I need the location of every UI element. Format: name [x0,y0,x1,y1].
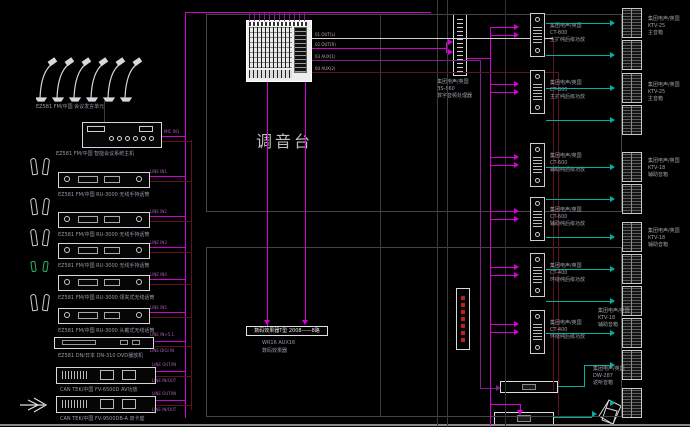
speaker-label-line: 集团电声/英国 [593,366,625,373]
speaker-label-line: 集团电声/英国 [598,308,630,315]
lavalier-mic-icon [30,261,36,273]
amp-label-line: 环绕纯后级功放 [550,334,585,341]
wire [546,199,610,200]
wire [312,72,558,73]
source-label: EZ581 FM/中国 RU-3000 无线手持话筒 [58,232,149,238]
line-label: LINE OUT/IN [152,392,176,396]
wire [490,92,514,93]
speaker-label-line: 集团电声/英国 [648,158,680,165]
wire [546,23,610,24]
wire [490,332,514,333]
receiver-knob [64,216,70,222]
wire [279,13,280,21]
wire [312,60,480,61]
receiver-knob [64,312,70,318]
wire [490,219,514,220]
line-label: LINE IN2 [150,210,167,214]
frame-bottom-edge [0,424,690,426]
wire [546,120,610,121]
wire [104,100,105,122]
speaker-label-line: KTV-18 [648,235,665,242]
receiver-display [78,279,98,286]
wire [546,269,610,270]
amp-vent [533,27,542,43]
speaker-icon [622,388,642,418]
receiver-display [104,216,120,223]
mixer-output-label: 03 AUX(1) [315,55,335,59]
wire-arrow-icon [514,321,519,327]
amp-label-line: CT-600 [550,214,567,221]
host-knob [117,136,122,141]
wire-arrow-icon [514,272,519,278]
panel-outline [206,14,622,212]
host-display [87,126,105,132]
amp-knob [535,105,540,110]
wire [150,216,185,217]
amp-knob [535,17,540,22]
handheld-mic-icon [30,294,38,312]
wire [259,13,260,21]
wire [490,157,514,158]
wire-arrow-icon [514,32,519,38]
amp-knob [535,288,540,293]
wire [546,55,610,56]
wire [267,82,268,326]
source-label: CAN TEK/中国 FV-6500D AV功放 [60,387,138,393]
conference-host-label: EZ581 FM/中国 智能会议系统主机 [56,151,134,157]
wire [490,324,514,325]
speaker-label-line: KTV-18 [598,315,615,322]
wire [380,14,381,417]
dvd-button [120,340,128,345]
wire [505,0,506,427]
wire [304,13,305,21]
wire [150,284,191,285]
amp-knob [535,147,540,152]
wire [150,279,185,280]
speaker-icon [622,8,642,38]
wire-arrow-icon [610,20,615,26]
speaker-label-line: DW-287 [593,373,613,380]
amp-label-line: 集团电声/英国 [550,153,582,160]
receiver-knob [64,247,70,253]
line-label: LINE DIGI IN [150,349,174,353]
host-knob [125,136,130,141]
line-label: LINE IN/OUT [152,408,176,412]
wire [299,13,300,21]
wire [437,0,438,427]
wire [546,88,610,89]
wire-arrow-icon [514,89,519,95]
wire [156,400,185,401]
host-knob [149,136,154,141]
wire [584,365,585,387]
wire-arrow-icon [514,208,519,214]
speaker-icon [622,105,642,135]
speaker-icon [622,222,642,252]
wire-arrow-icon [610,117,615,123]
amp-knob [535,178,540,183]
receiver-knob [136,312,142,318]
amp-vent [533,267,542,283]
amp-label-line: CT-400 [550,270,567,277]
wire [558,72,559,417]
receiver-knob [136,216,142,222]
wire [490,35,514,36]
speaker-icon [622,184,642,214]
amp-vent [533,324,542,340]
receiver-knob [64,176,70,182]
receiver-knob [136,176,142,182]
amp-knob [535,201,540,206]
speaker-icon [622,318,642,348]
wire-arrow-icon [514,154,519,160]
wire [191,140,192,410]
wire [554,417,592,418]
wire [490,404,520,405]
gooseneck-mic-array-icon [36,52,142,102]
wire-arrow-icon [514,162,519,168]
line-label: LINE IN4 [150,273,167,277]
wire [546,301,610,302]
receiver-display [78,216,98,223]
speaker-label-line: KTV-25 [648,23,665,30]
line-label: LINE IN/OUT [152,379,176,383]
amp-label-line: 集团电声/英国 [550,80,582,87]
wire-arrow-icon [514,24,519,30]
line-label: LINE IN1 [150,170,167,174]
line-label: LINE OUT/IN [152,363,176,367]
amp-knob [535,345,540,350]
wire [156,405,191,406]
wire-arrow-icon [514,329,519,335]
wire [150,312,185,313]
source-label: EZ581 FM/中国 RU-3000 无线手持话筒 [58,192,149,198]
wire [490,275,514,276]
speaker-label-line: 主音箱 [648,30,663,37]
wire [480,60,481,389]
amp-label-line: CT-800 [550,30,567,37]
wire [546,167,610,168]
wire-arrow-icon [610,52,615,58]
wire [490,28,491,427]
receiver-display [104,176,120,183]
amp-knob [535,257,540,262]
amp-label-line: 集团电声/英国 [550,207,582,214]
receiver-display [78,176,98,183]
amp-label-line: 集团电声/英国 [550,320,582,327]
speaker-icon [622,254,642,284]
handheld-mic-icon [42,198,50,216]
wire [162,141,191,142]
wire [447,0,448,427]
handheld-mic-icon [30,158,38,176]
wire [156,376,191,377]
receiver-knob [64,279,70,285]
wire-arrow-icon [610,400,615,406]
receiver-display [104,312,120,319]
deck-vu [62,400,88,408]
conference-mics-label: EZ581 FM/中国 会议发言单元 [36,104,104,110]
amp-knob [535,74,540,79]
deck-window [100,370,114,380]
receiver-display [78,312,98,319]
dvd-button [132,340,140,345]
speaker-label-line: 辅助音箱 [648,172,668,179]
wire-arrow-icon [264,320,270,325]
deck-window [122,399,136,409]
wire-arrow-icon [610,85,615,91]
speaker-icon [622,350,642,380]
wire [150,181,191,182]
wire [150,317,191,318]
handheld-mic-icon [30,229,38,247]
wire [546,333,610,334]
deck-window [122,370,136,380]
mixer-output-label: 04 AUX(2) [315,67,335,71]
wire-arrow-icon [610,234,615,240]
wire [156,371,185,372]
source-label: EZ581 FM/中国 RU-3000 头戴式无线话筒 [58,328,154,334]
wire-arrow-icon [302,320,308,325]
wire-arrow-icon [514,216,519,222]
wire [312,38,553,39]
deck-window [100,399,114,409]
amp-vent [533,84,542,100]
flow-arrow-icon [20,396,50,414]
speaker-label-line: 辅助音箱 [648,242,668,249]
receiver-knob [136,279,142,285]
wire-arrow-icon [517,410,523,415]
wire [558,386,584,387]
wire [150,176,185,177]
speaker-label-line: 返听音箱 [593,380,613,387]
wire [155,346,191,347]
amp-vent [533,157,542,173]
wire-arrow-icon [514,264,519,270]
wire [294,13,295,21]
wire [289,13,290,21]
source-label: CAN TEK/中国 FV-9500DB-A 双卡座 [60,416,145,422]
speaker-label-line: 辅助音箱 [598,322,618,329]
wire-arrow-icon [448,39,453,45]
speaker-icon [622,40,642,70]
wire-arrow-icon [610,298,615,304]
wire [305,82,306,321]
wire [467,58,490,59]
wire [490,267,514,268]
wire [446,42,447,53]
receiver-display [104,247,120,254]
wire-arrow-icon [610,266,615,272]
receiver-display [78,247,98,254]
mixer-output-label: 02 OUT(R) [315,43,336,47]
wire [490,211,514,212]
wire [150,252,191,253]
wire-arrow-icon [610,164,615,170]
amp-knob [535,232,540,237]
amp-knob [535,48,540,53]
amp-label-line: 环绕纯后级功放 [550,277,585,284]
wire [185,12,431,13]
wire [274,13,275,21]
amp-label-line: 辅助纯后级功放 [550,221,585,228]
speaker-label-line: KTV-18 [648,165,665,172]
mixer-output-label: 01 OUT(L) [315,33,335,37]
wire [155,341,185,342]
cad-canvas: 调音台 EZ581 FM/中国 会议发言单元 EZ581 FM/中国 智能会议系… [0,0,690,427]
wire [254,13,255,21]
wire [264,13,265,21]
conference-line-label: MIC IN1 [164,130,179,134]
wire [546,237,610,238]
wire [490,27,514,28]
wire-arrow-icon [496,385,501,391]
wire [249,13,250,21]
conference-host-unit [82,122,162,148]
receiver-display [104,279,120,286]
host-knob [141,136,146,141]
source-label: EZ581 DN/日本 DN-310 DVD播放机 [58,353,143,359]
wire [162,136,185,137]
speaker-icon [622,152,642,182]
handheld-mic-icon [42,229,50,247]
wire-arrow-icon [448,49,453,55]
wire [284,13,285,21]
handheld-mic-icon [42,158,50,176]
host-display [139,126,153,132]
wire-arrow-icon [592,411,597,417]
speaker-icon [622,73,642,103]
amp-vent [533,211,542,227]
dvd-tray [62,340,96,345]
speaker-label-line: 集团电声/英国 [648,228,680,235]
wire-arrow-icon [610,330,615,336]
line-label: LINE IN+5.1 [150,333,174,337]
line-label: LINE IN5 [150,306,167,310]
amp-label-line: 主扩纯后级功放 [550,94,585,101]
receiver-knob [136,247,142,253]
wire-arrow-icon [514,81,519,87]
speaker-label-line: KTV-25 [648,89,665,96]
host-knob [109,136,114,141]
wire [490,84,514,85]
wire [185,12,186,418]
amp-knob [535,314,540,319]
wire [269,13,270,21]
handheld-mic-icon [42,294,50,312]
speaker-label-line: 集团电声/英国 [648,16,680,23]
wire [490,165,514,166]
line-label: LINE IN3 [150,241,167,245]
wire-arrow-icon [610,196,615,202]
lavalier-mic-icon [42,261,48,273]
source-label: EZ581 FM/中国 RU-3000 领夹式无线话筒 [58,295,154,301]
wire [150,247,185,248]
speaker-label-line: 集团电声/英国 [648,82,680,89]
wire [312,48,446,49]
amp-label-line: CT-600 [550,160,567,167]
amp-label-line: 主扩纯后级功放 [550,37,585,44]
deck-vu [62,371,88,379]
host-knob [133,136,138,141]
wire [150,221,191,222]
source-label: EZ581 FM/中国 RU-3000 无线手持话筒 [58,263,149,269]
speaker-label-line: 主音箱 [648,96,663,103]
handheld-mic-icon [30,198,38,216]
